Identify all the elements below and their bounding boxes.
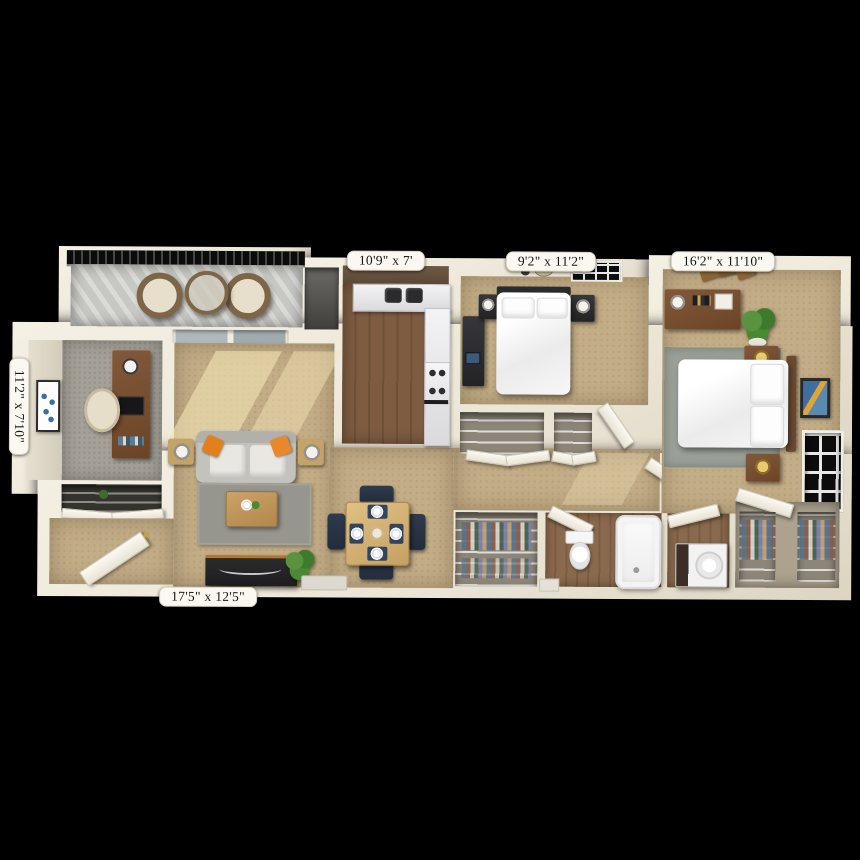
office-chair [84, 388, 120, 432]
dinner-plate [370, 505, 385, 519]
floorplan-canvas: 10'9" x 7' 9'2" x 11'2" 16'2" x 11'10" 1… [0, 0, 860, 860]
den-wall-art [36, 380, 60, 432]
patio-table [185, 271, 229, 315]
bed-pillow [750, 364, 784, 405]
bedroom2-window [802, 430, 844, 512]
hall-closet-interior [460, 412, 544, 454]
nightstand-lamp [575, 298, 592, 315]
desk-monitor [118, 396, 144, 415]
hanging-clothes [741, 520, 773, 560]
bathtub [615, 515, 661, 589]
coffee-table-plant [252, 501, 260, 509]
dinner-plate [349, 527, 364, 541]
patio-chair [137, 272, 183, 318]
front-door-knob [143, 533, 148, 538]
bath-tile [539, 579, 559, 592]
table-lamp [302, 442, 322, 462]
dimension-label-bedroom2: 16'2" x 11'10" [671, 251, 775, 272]
desk-books [118, 436, 144, 445]
stove [424, 362, 450, 404]
dimension-label-bedroom1: 9'2" x 11'2" [506, 251, 596, 271]
hanging-clothes [461, 522, 531, 550]
tv-soundbar [219, 563, 281, 575]
dresser-photo-frame [465, 352, 480, 364]
dimension-label-den: 11'2" x 7'10" [9, 358, 30, 455]
apartment-scene: 10'9" x 7' 9'2" x 11'2" 16'2" x 11'10" 1… [0, 0, 860, 860]
table-centerpiece [368, 526, 385, 541]
bathtub-drain [633, 567, 639, 573]
hanging-clothes [799, 520, 833, 560]
nightstand-lamp-gold [754, 458, 772, 476]
dinner-plate [369, 547, 384, 561]
sliding-glass-door [172, 330, 288, 344]
hall-closet-interior [554, 413, 592, 455]
pantry-nook [305, 267, 339, 329]
dresser-notepad [715, 293, 733, 309]
toilet-bowl [569, 542, 590, 570]
table-lamp [172, 442, 192, 462]
stove-handle [424, 400, 448, 404]
dining-chair [327, 513, 345, 549]
dining-chair [407, 514, 425, 550]
nightstand-lamp [481, 297, 496, 312]
dimension-label-living: 17'5" x 12'5" [159, 587, 257, 608]
bed-pillow [750, 406, 784, 447]
bed-pillow [502, 297, 535, 318]
vanity-sink-basin [695, 551, 723, 579]
patio-chair [225, 273, 271, 319]
dimension-label-kitchen: 10'9" x 7' [347, 251, 425, 271]
kitchen-sink [406, 288, 423, 303]
bedroom2-wall-art [800, 378, 830, 418]
entry-tile [301, 575, 347, 590]
dinner-plate [388, 527, 403, 541]
desk-clock [122, 358, 138, 374]
hanging-clothes [461, 558, 531, 578]
coat-closet-plant [96, 488, 112, 500]
bed-pillow [537, 298, 568, 319]
dresser-lamp [669, 293, 687, 311]
dresser-books [693, 295, 711, 305]
kitchen-sink [385, 288, 402, 303]
